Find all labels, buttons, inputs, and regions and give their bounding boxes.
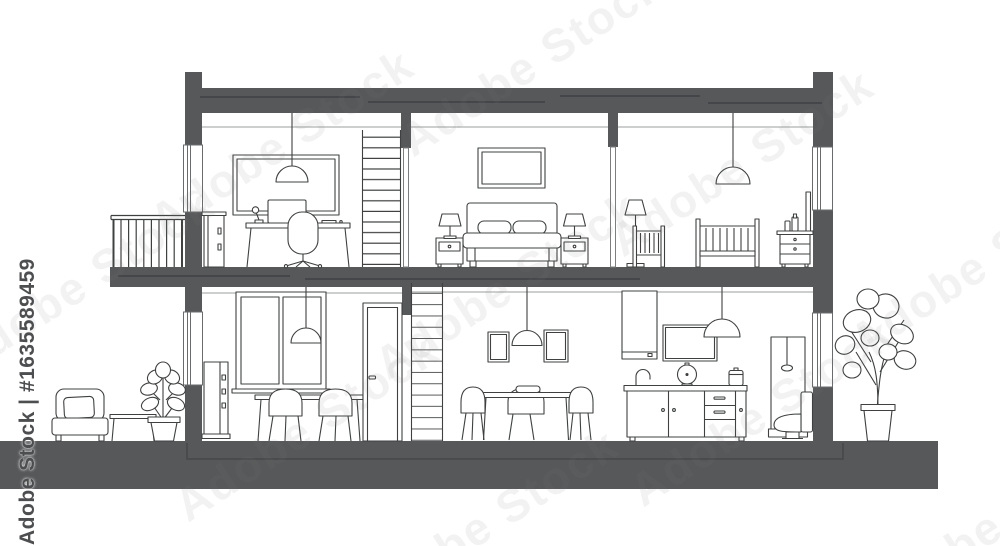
left-parapet <box>185 72 202 145</box>
office-cabinet <box>202 212 226 267</box>
staircase-upper <box>363 130 401 267</box>
partition-bedroom-nursery <box>611 147 616 267</box>
window-upper-right <box>813 147 833 210</box>
header-stair-lower <box>402 287 412 315</box>
dining-wall-picture-1 <box>488 332 509 362</box>
kitchen-counter <box>624 386 747 442</box>
house-cross-section-drawing <box>0 0 1000 546</box>
living-room-chair-1 <box>269 389 302 441</box>
kitchen-wall-cabinet <box>622 291 657 359</box>
left-wall-mid <box>185 212 202 312</box>
kitchen-clock <box>678 363 697 386</box>
balcony-railing <box>111 216 185 268</box>
header-bedroom-nursery <box>608 113 618 147</box>
left-wall-low <box>185 385 202 443</box>
window-upper-left <box>184 145 203 212</box>
interior-door <box>363 303 402 441</box>
armchair <box>52 389 108 441</box>
dining-chair-right <box>569 387 593 440</box>
nightstand-left <box>436 238 463 267</box>
table-lamp-left <box>439 214 461 239</box>
baby-crib <box>696 219 759 267</box>
window-lower-left <box>184 312 203 385</box>
potted-plant <box>139 362 187 441</box>
bedroom-wall-picture <box>478 148 545 188</box>
header-office-bedroom <box>401 113 411 148</box>
right-parapet <box>813 72 833 147</box>
ground-strip <box>0 441 938 489</box>
potted-tree <box>832 289 919 441</box>
living-room-chair-2 <box>319 389 352 441</box>
roof-slab <box>185 88 833 113</box>
double-bed <box>463 203 561 267</box>
toddler-bed <box>633 226 665 267</box>
dining-pendant-lamp <box>512 287 542 346</box>
office-chair <box>284 212 321 268</box>
nursery-pendant-lamp <box>716 113 750 184</box>
kitchen-faucet <box>636 370 650 386</box>
dining-wall-picture-2 <box>544 330 568 362</box>
stock-id-watermark: Adobe Stock | #1635589459 <box>16 258 40 545</box>
right-wall-mid <box>813 210 833 313</box>
table-lamp-right <box>564 214 586 239</box>
office-pendant-lamp <box>276 113 308 182</box>
dining-chair-left <box>461 387 485 440</box>
changing-dresser <box>777 192 813 267</box>
stock-image-canvas: Adobe Stock Adobe Stock Adobe Stock Adob… <box>0 0 1000 546</box>
tv-cabinet <box>202 362 230 439</box>
kitchen-pendant-lamp <box>704 287 740 337</box>
partition-office-bedroom <box>404 148 409 267</box>
right-wall-low <box>813 387 833 443</box>
kitchen-jar <box>729 368 743 386</box>
window-lower-right <box>813 313 833 387</box>
nightstand-right <box>561 238 588 267</box>
staircase-lower <box>412 283 443 441</box>
